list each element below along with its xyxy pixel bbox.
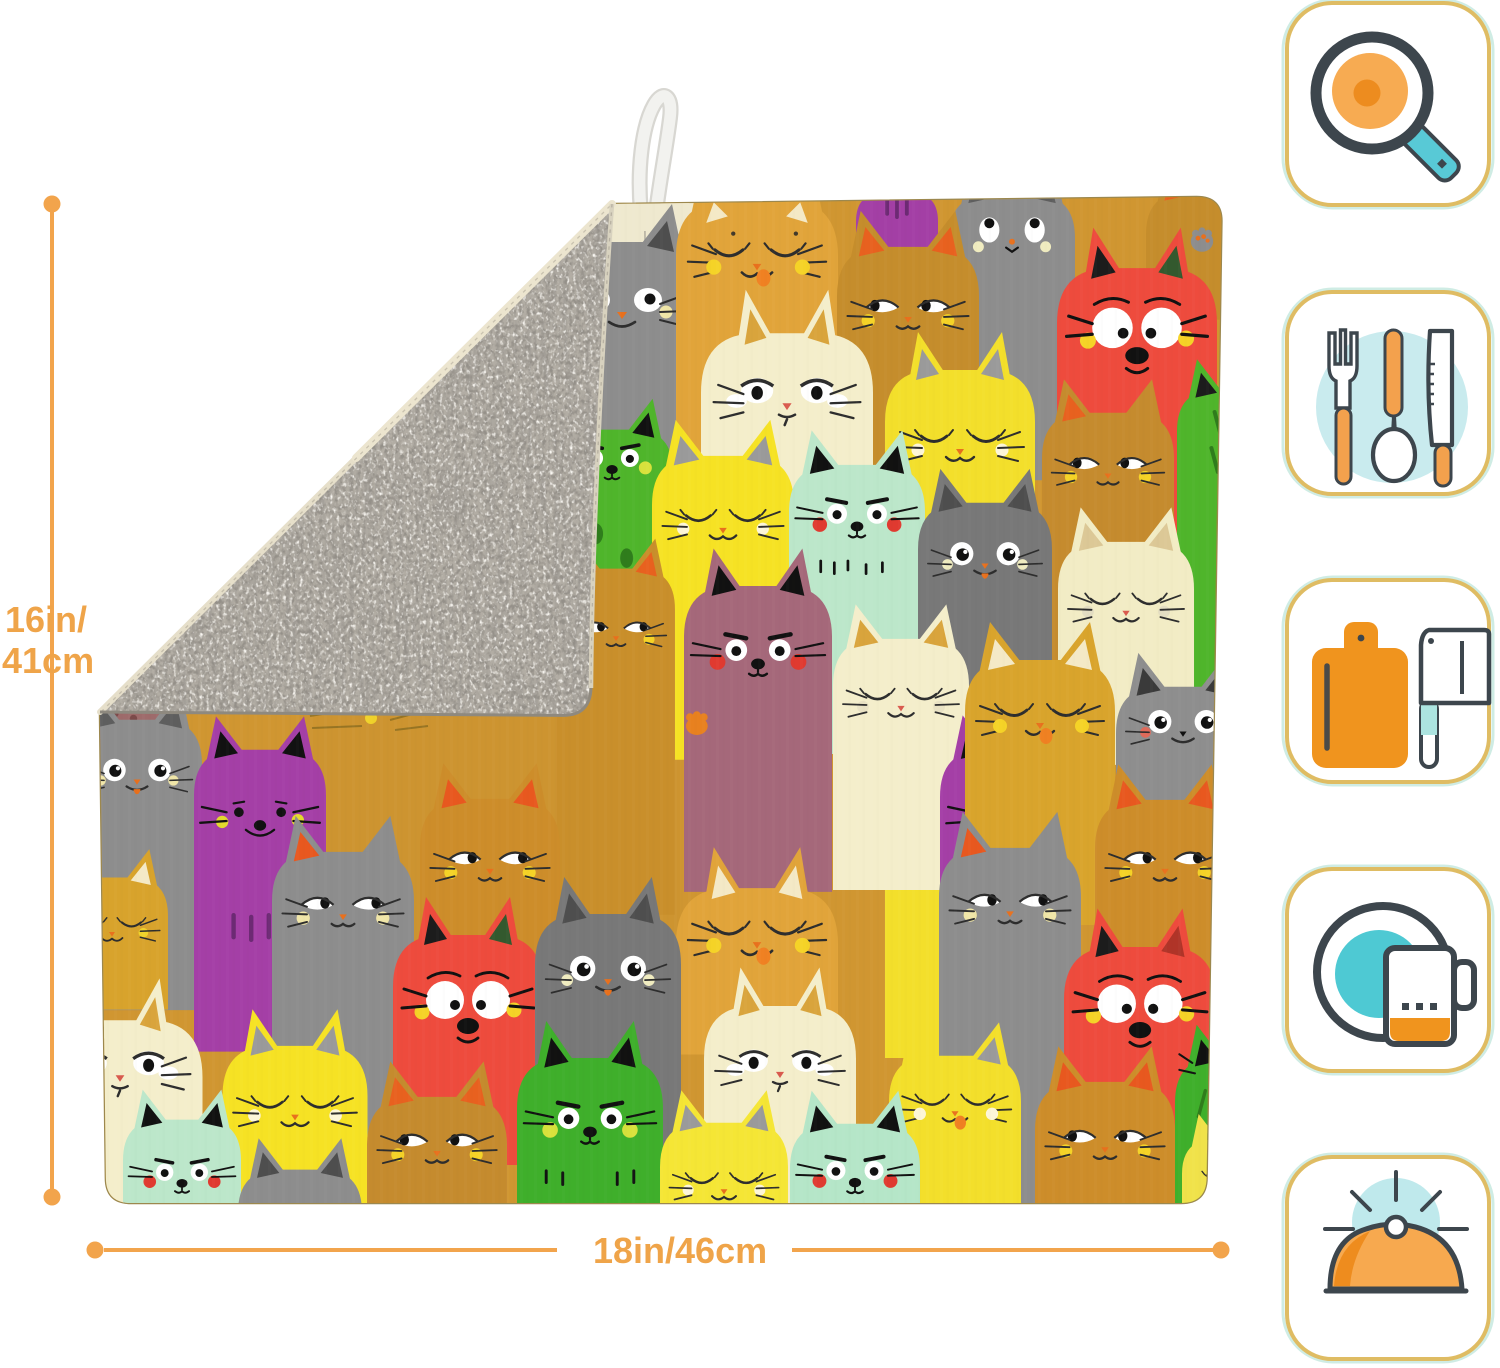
svg-text:41cm: 41cm <box>2 640 94 681</box>
svg-text:18in/46cm: 18in/46cm <box>593 1230 767 1271</box>
svg-text:16in/: 16in/ <box>5 599 87 640</box>
